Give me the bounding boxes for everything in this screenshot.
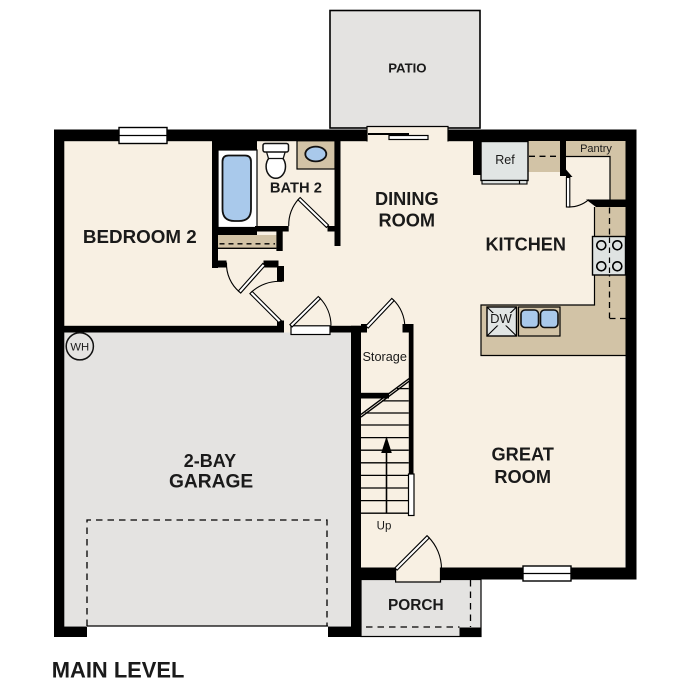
svg-text:ROOM: ROOM [379, 210, 436, 230]
svg-text:GARAGE: GARAGE [169, 472, 253, 493]
svg-text:MAIN LEVEL: MAIN LEVEL [52, 658, 185, 683]
svg-text:BEDROOM 2: BEDROOM 2 [83, 226, 197, 247]
svg-text:2-BAY: 2-BAY [184, 451, 236, 471]
svg-text:PATIO: PATIO [388, 60, 426, 75]
svg-text:ROOM: ROOM [494, 467, 551, 487]
svg-text:PORCH: PORCH [388, 597, 444, 614]
svg-text:Up: Up [377, 521, 392, 533]
svg-text:GREAT: GREAT [492, 444, 554, 464]
svg-text:WH: WH [70, 341, 89, 353]
svg-text:KITCHEN: KITCHEN [485, 235, 565, 255]
svg-text:DINING: DINING [375, 189, 439, 209]
svg-text:Storage: Storage [362, 350, 406, 364]
svg-text:Pantry: Pantry [580, 143, 612, 155]
svg-text:Ref: Ref [495, 153, 515, 167]
svg-text:DW: DW [490, 311, 512, 326]
svg-text:BATH 2: BATH 2 [270, 180, 322, 196]
